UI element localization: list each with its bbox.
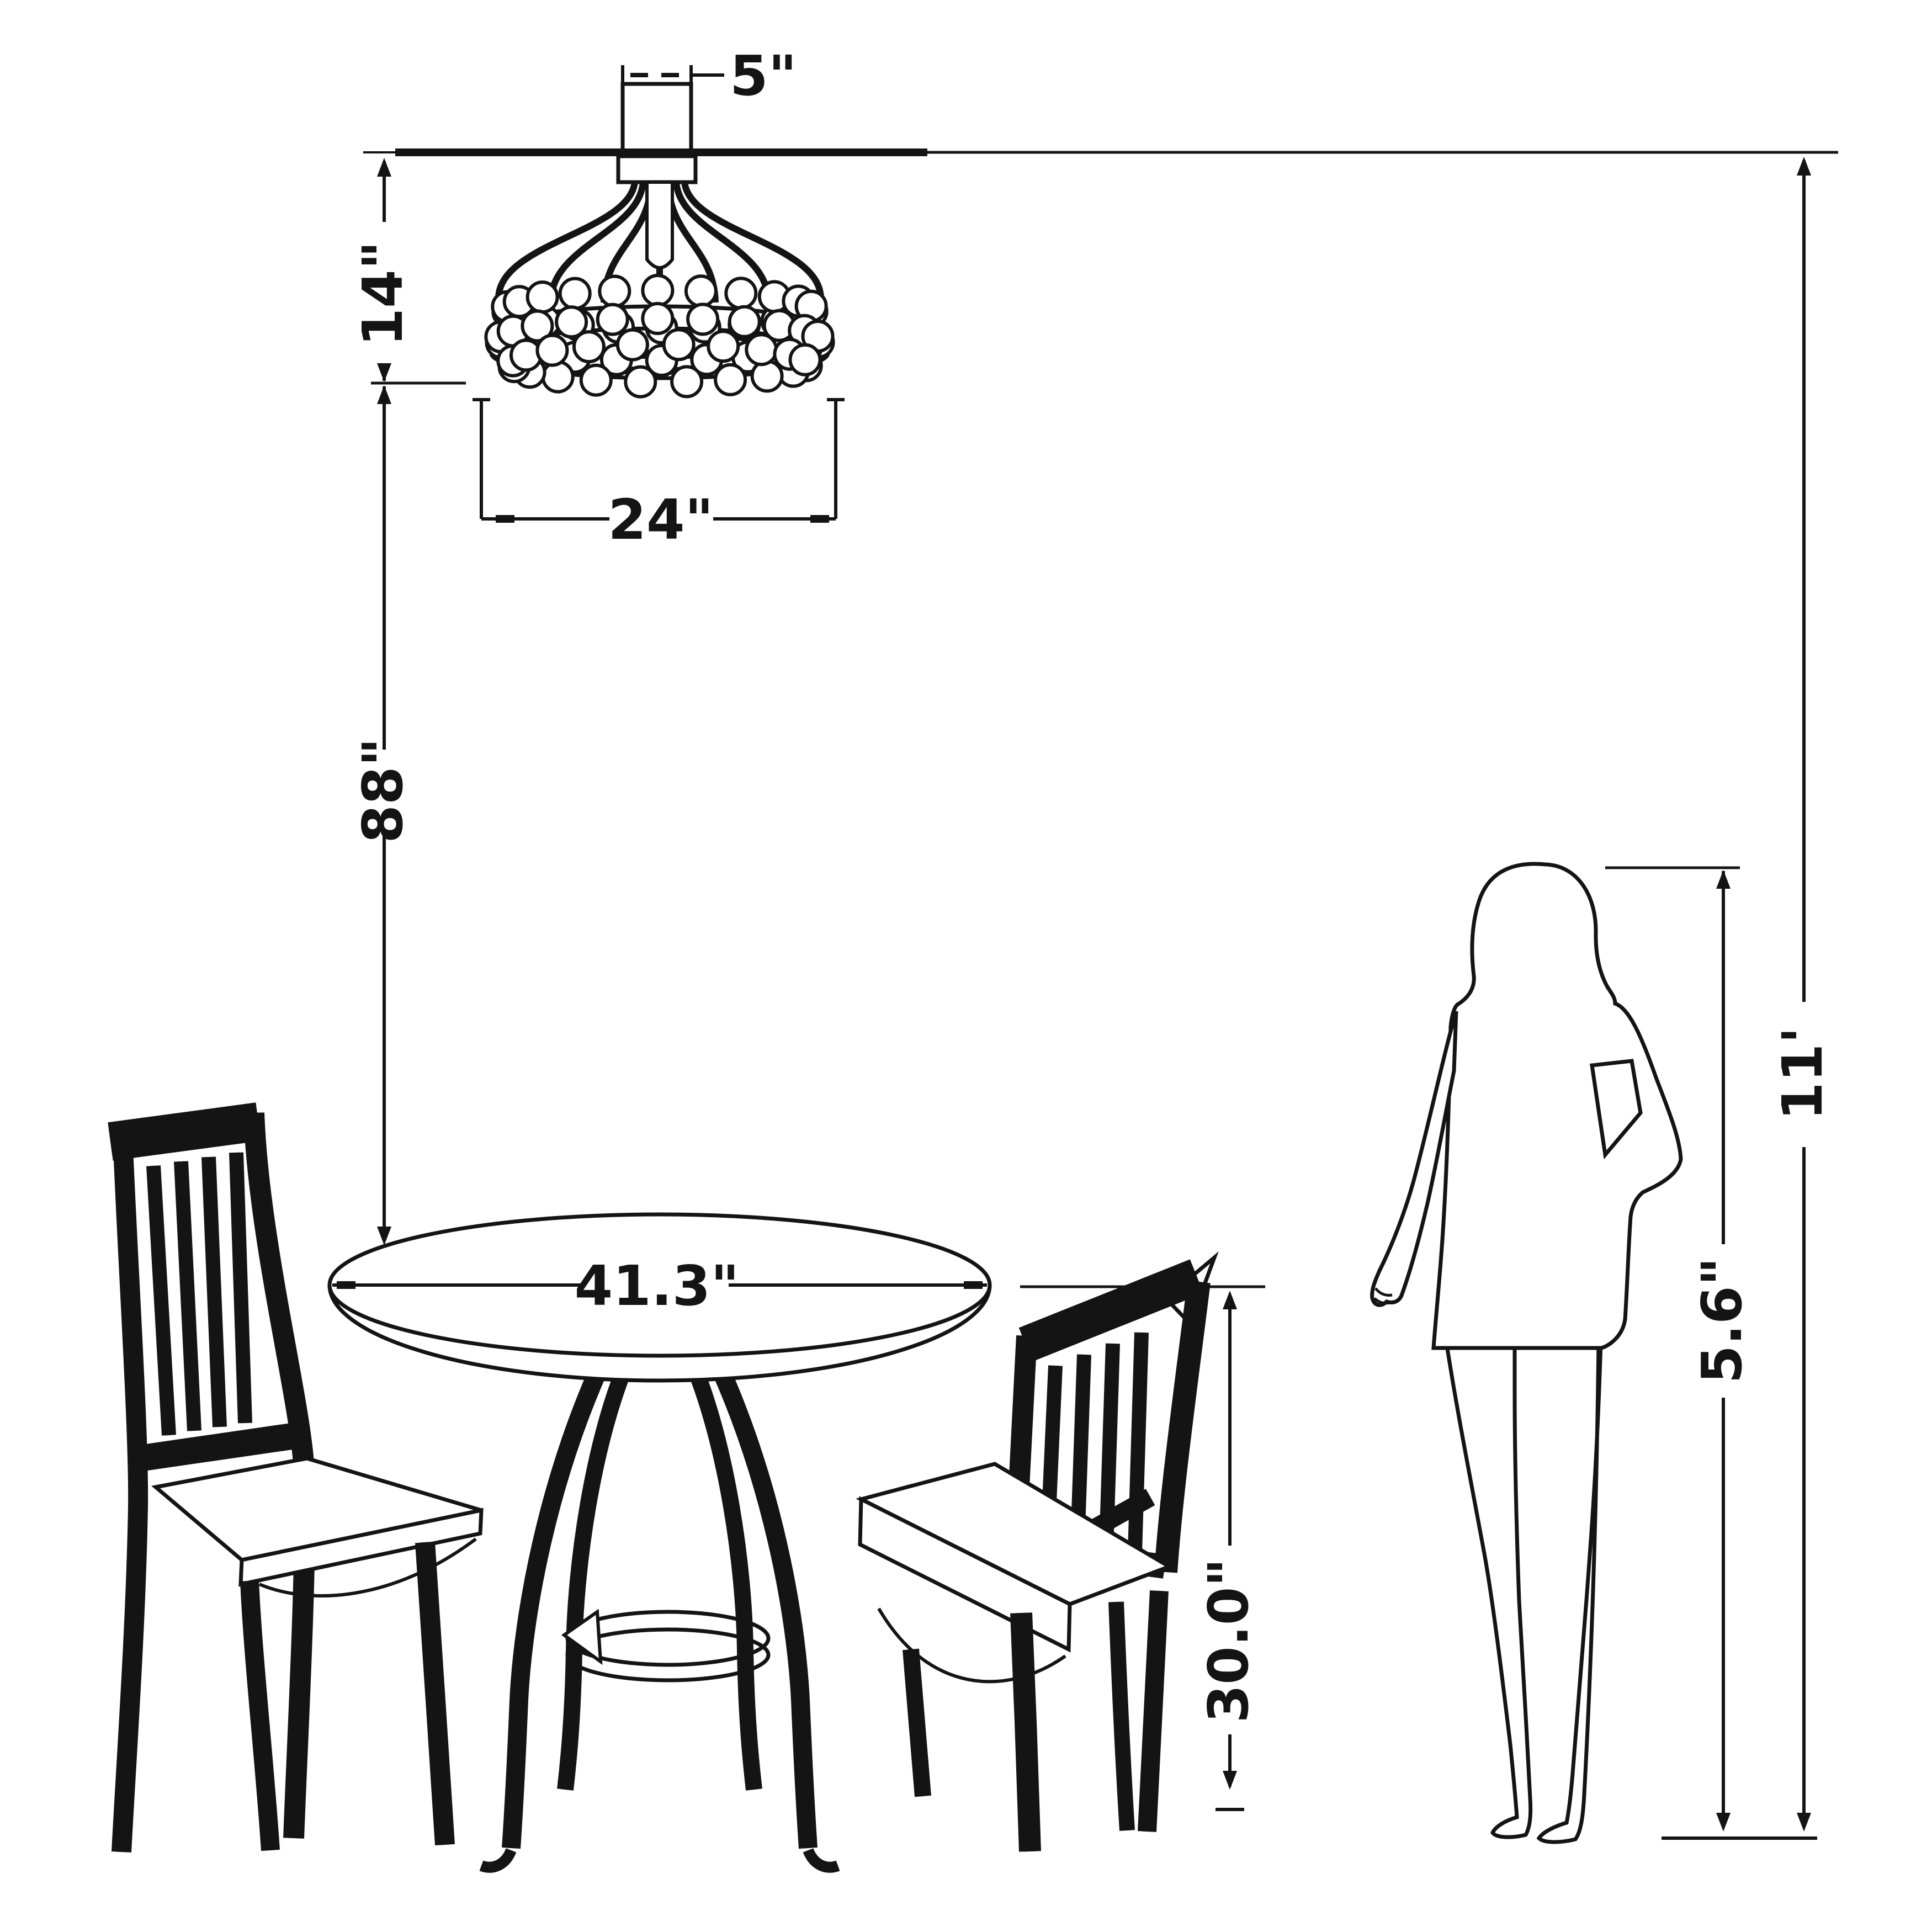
diagram-canvas: 5" 14" 24" 88" 41.3" [0, 0, 1932, 1932]
chandelier-diameter-label: 24" [608, 487, 713, 552]
dimension-diagram: 5" 14" 24" 88" 41.3" [0, 0, 1932, 1932]
chandelier-body [486, 156, 833, 397]
person-height-label: 5.6" [1690, 1257, 1754, 1383]
person-silhouette [1372, 864, 1681, 1842]
table-height-label: 30.0" [1196, 1558, 1261, 1723]
chandelier-height-label: 14" [351, 241, 415, 346]
chandelier [623, 84, 691, 152]
ceiling-to-table-label: 88" [351, 737, 415, 843]
table-pedestal [481, 1359, 838, 1867]
chandelier-mount [618, 156, 696, 182]
ceiling-line [363, 148, 1838, 156]
dim-chandelier-diameter: 24" [473, 400, 845, 552]
dim-ceiling-to-table: 88" [351, 385, 415, 1245]
dim-chandelier-height: 14" [351, 158, 466, 383]
canopy-width-label: 5" [730, 44, 797, 108]
dim-ceiling-height: 11' [1770, 157, 1835, 1832]
ceiling-height-label: 11' [1770, 1027, 1835, 1121]
left-chair [110, 1113, 481, 1852]
table-diameter-label: 41.3" [575, 1254, 740, 1318]
chandelier-canopy [623, 84, 691, 152]
